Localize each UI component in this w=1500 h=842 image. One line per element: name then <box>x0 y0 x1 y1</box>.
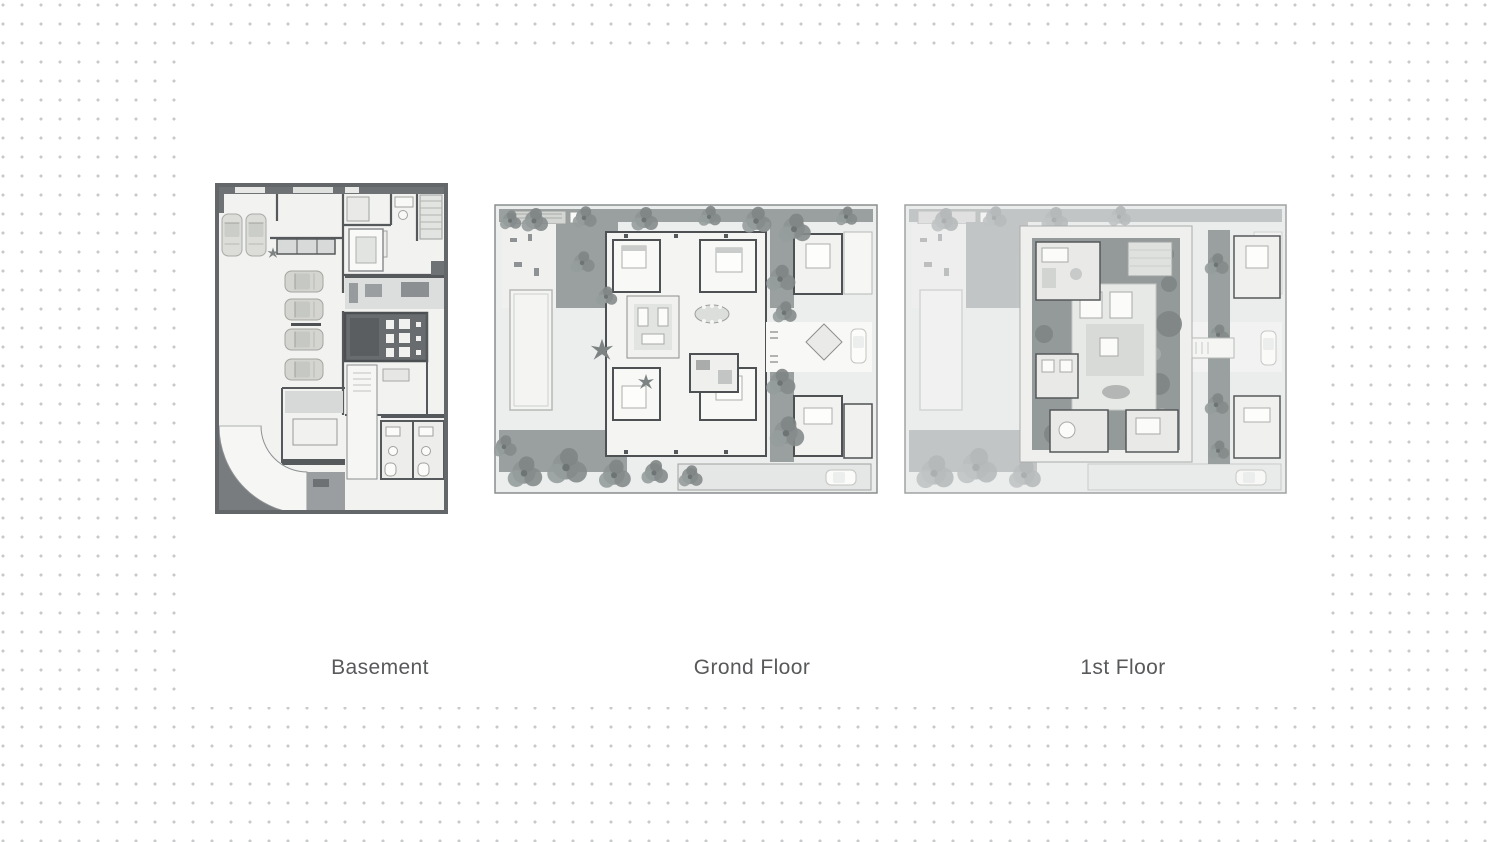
first-floor-plan-image <box>904 204 1287 494</box>
ground-driveway <box>678 464 871 490</box>
basement-corridor <box>347 365 377 479</box>
ground-main-house <box>591 232 766 456</box>
basement-bathrooms <box>381 417 444 479</box>
floor-plan-label-ground: Grond Floor <box>694 655 810 680</box>
basement-floor-plan-image <box>215 183 448 514</box>
swimming-pool <box>510 290 552 410</box>
first-central-block <box>1020 226 1192 462</box>
ground-entry-drive <box>766 322 872 372</box>
basement-theater-room <box>345 313 427 361</box>
floor-plan-label-basement: Basement <box>331 655 429 680</box>
basement-stairs <box>420 195 442 239</box>
floor-plan-first[interactable] <box>904 204 1287 494</box>
floor-plan-basement[interactable] <box>215 183 448 514</box>
floor-plans-page: Basement Grond Floor 1st Floor <box>0 0 1500 842</box>
ground-floor-plan-image <box>494 204 878 494</box>
floor-plan-label-first: 1st Floor <box>1080 655 1165 680</box>
floor-plan-ground[interactable] <box>494 204 878 494</box>
